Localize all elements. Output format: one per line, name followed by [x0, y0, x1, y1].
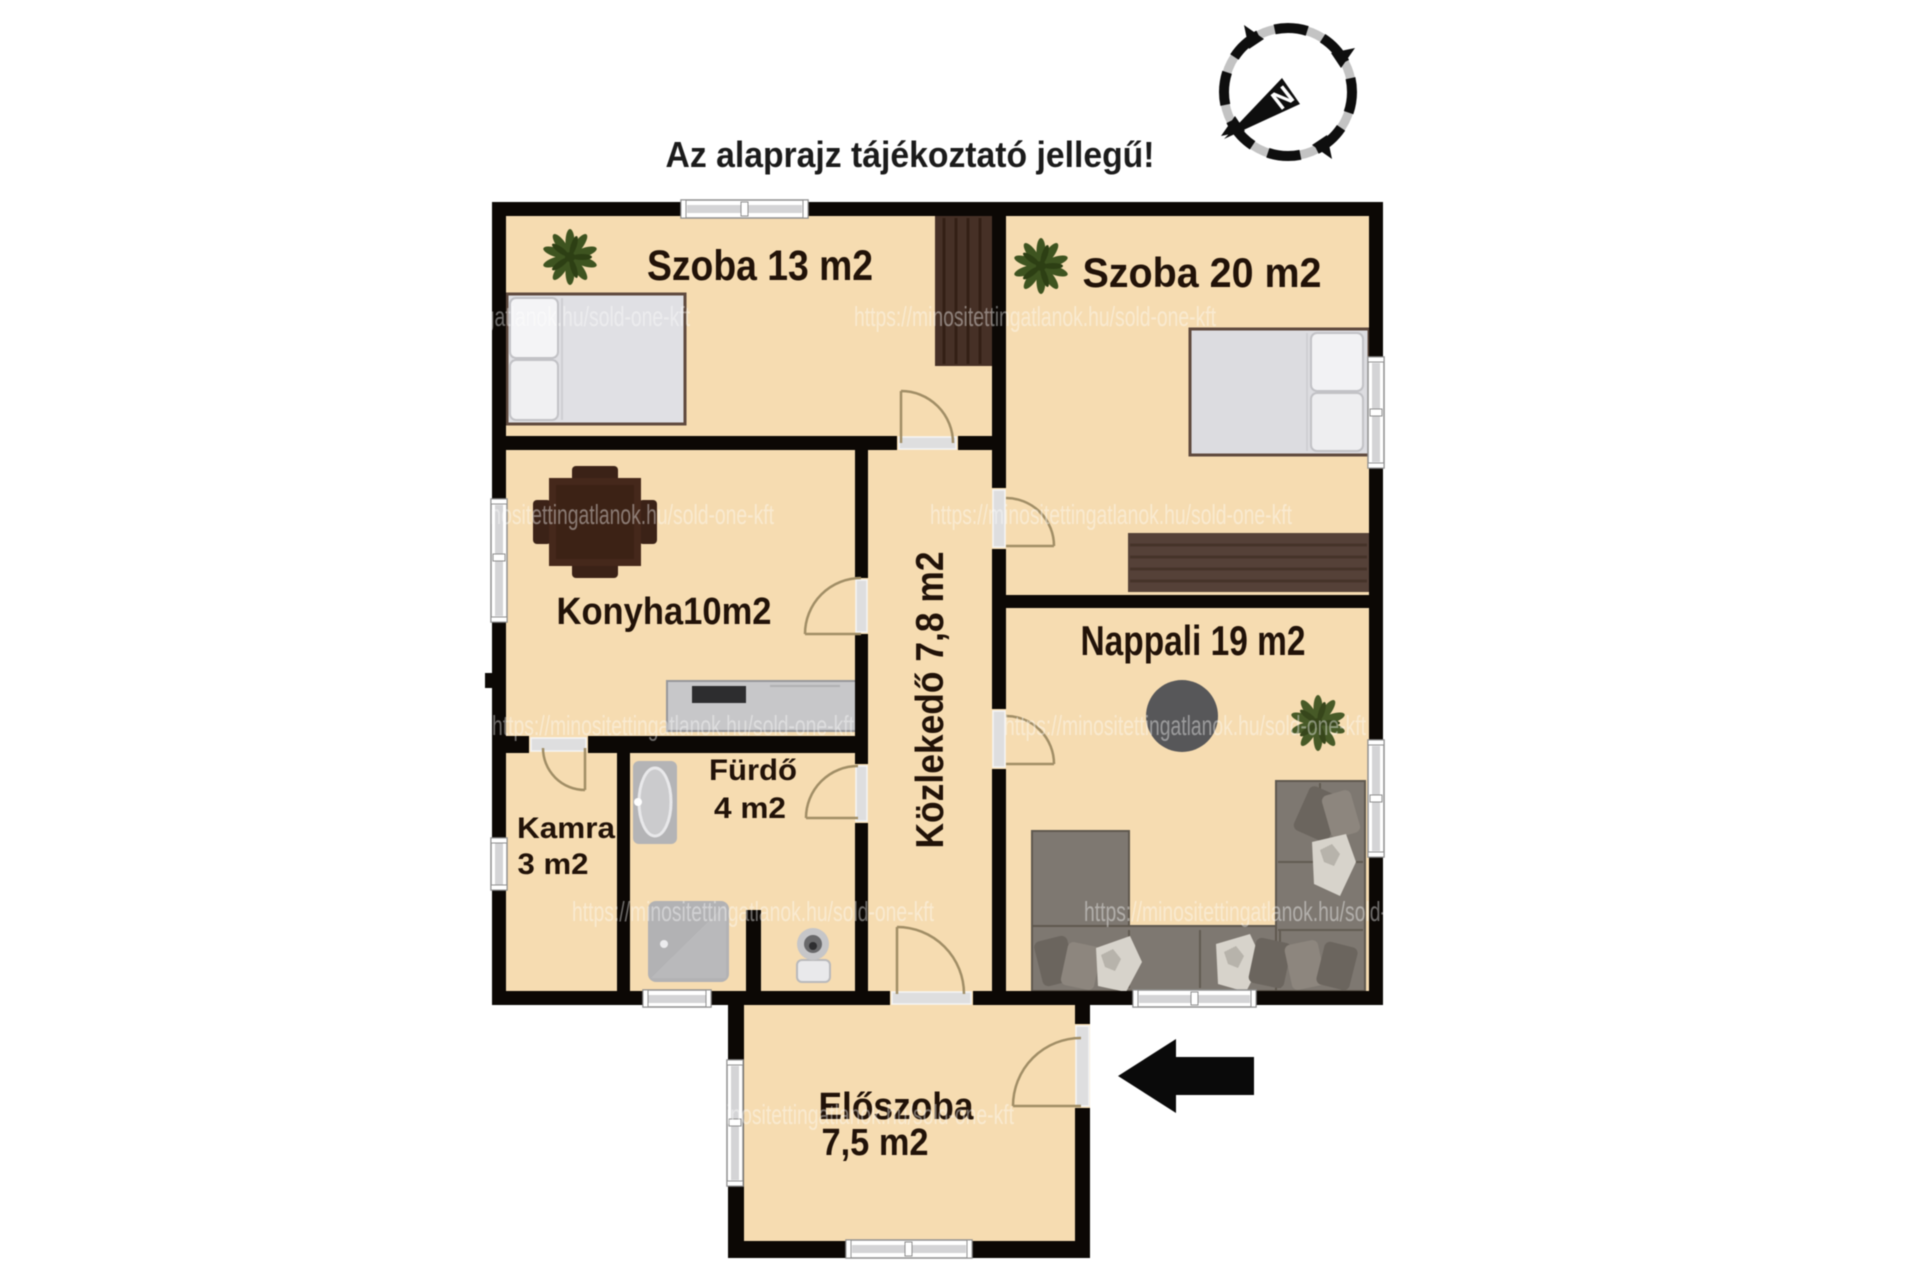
svg-text:https://minositettingatlanok.h: https://minositettingatlanok.hu/sold-one… — [572, 896, 934, 927]
svg-text:https://minositettingatlanok.h: https://minositettingatlanok.hu/sold-one… — [328, 301, 690, 332]
svg-text:https://minositettingatlanok.h: https://minositettingatlanok.hu/sold-one… — [1004, 710, 1366, 741]
svg-text:https://minositettingatlanok.h: https://minositettingatlanok.hu/sold-one… — [492, 710, 854, 741]
svg-text:Szoba 20 m2: Szoba 20 m2 — [1083, 249, 1322, 296]
svg-text:https://minositettingatlanok.h: https://minositettingatlanok.hu/sold-one… — [652, 1099, 1014, 1130]
svg-text:Kamra: Kamra — [517, 812, 615, 845]
svg-text:https://minositettingatlanok.h: https://minositettingatlanok.hu/sold-one… — [854, 301, 1216, 332]
svg-text:https://minositettingatlanok.h: https://minositettingatlanok.hu/sold-one… — [412, 499, 774, 530]
svg-text:https://minositettingatlanok.h: https://minositettingatlanok.hu/sold-one… — [930, 499, 1292, 530]
svg-text:Közlekedő 7,8 m2: Közlekedő 7,8 m2 — [909, 552, 952, 849]
svg-text:https://minositettingatlanok.h: https://minositettingatlanok.hu/sold-one… — [1084, 896, 1446, 927]
svg-text:4 m2: 4 m2 — [714, 792, 786, 825]
svg-text:Az alaprajz tájékoztató jelleg: Az alaprajz tájékoztató jellegű! — [666, 134, 1155, 175]
svg-text:Nappali 19 m2: Nappali 19 m2 — [1081, 617, 1306, 664]
svg-text:Konyha10m2: Konyha10m2 — [557, 591, 772, 633]
svg-text:3 m2: 3 m2 — [518, 848, 589, 881]
svg-text:Fürdő: Fürdő — [709, 754, 797, 787]
svg-text:Szoba 13 m2: Szoba 13 m2 — [647, 242, 873, 290]
